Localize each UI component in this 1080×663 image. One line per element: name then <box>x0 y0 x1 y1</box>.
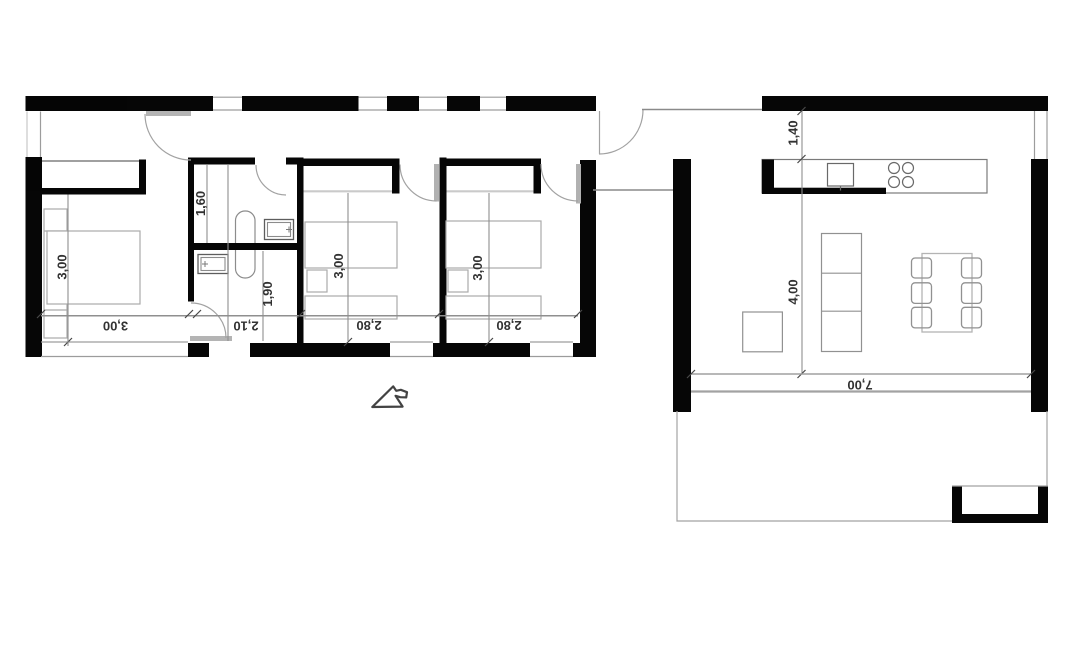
svg-text:4,00: 4,00 <box>786 279 801 304</box>
svg-text:2,10: 2,10 <box>233 319 258 334</box>
svg-text:2,80: 2,80 <box>496 318 521 333</box>
svg-text:1,40: 1,40 <box>786 120 801 145</box>
svg-text:3,00: 3,00 <box>331 253 346 278</box>
svg-text:7,00: 7,00 <box>847 378 872 393</box>
svg-text:3,00: 3,00 <box>55 254 70 279</box>
svg-text:1,90: 1,90 <box>260 281 275 306</box>
svg-text:1,60: 1,60 <box>193 191 208 216</box>
svg-text:3,00: 3,00 <box>470 255 485 280</box>
svg-text:2,80: 2,80 <box>356 318 381 333</box>
svg-text:3,00: 3,00 <box>103 319 128 334</box>
